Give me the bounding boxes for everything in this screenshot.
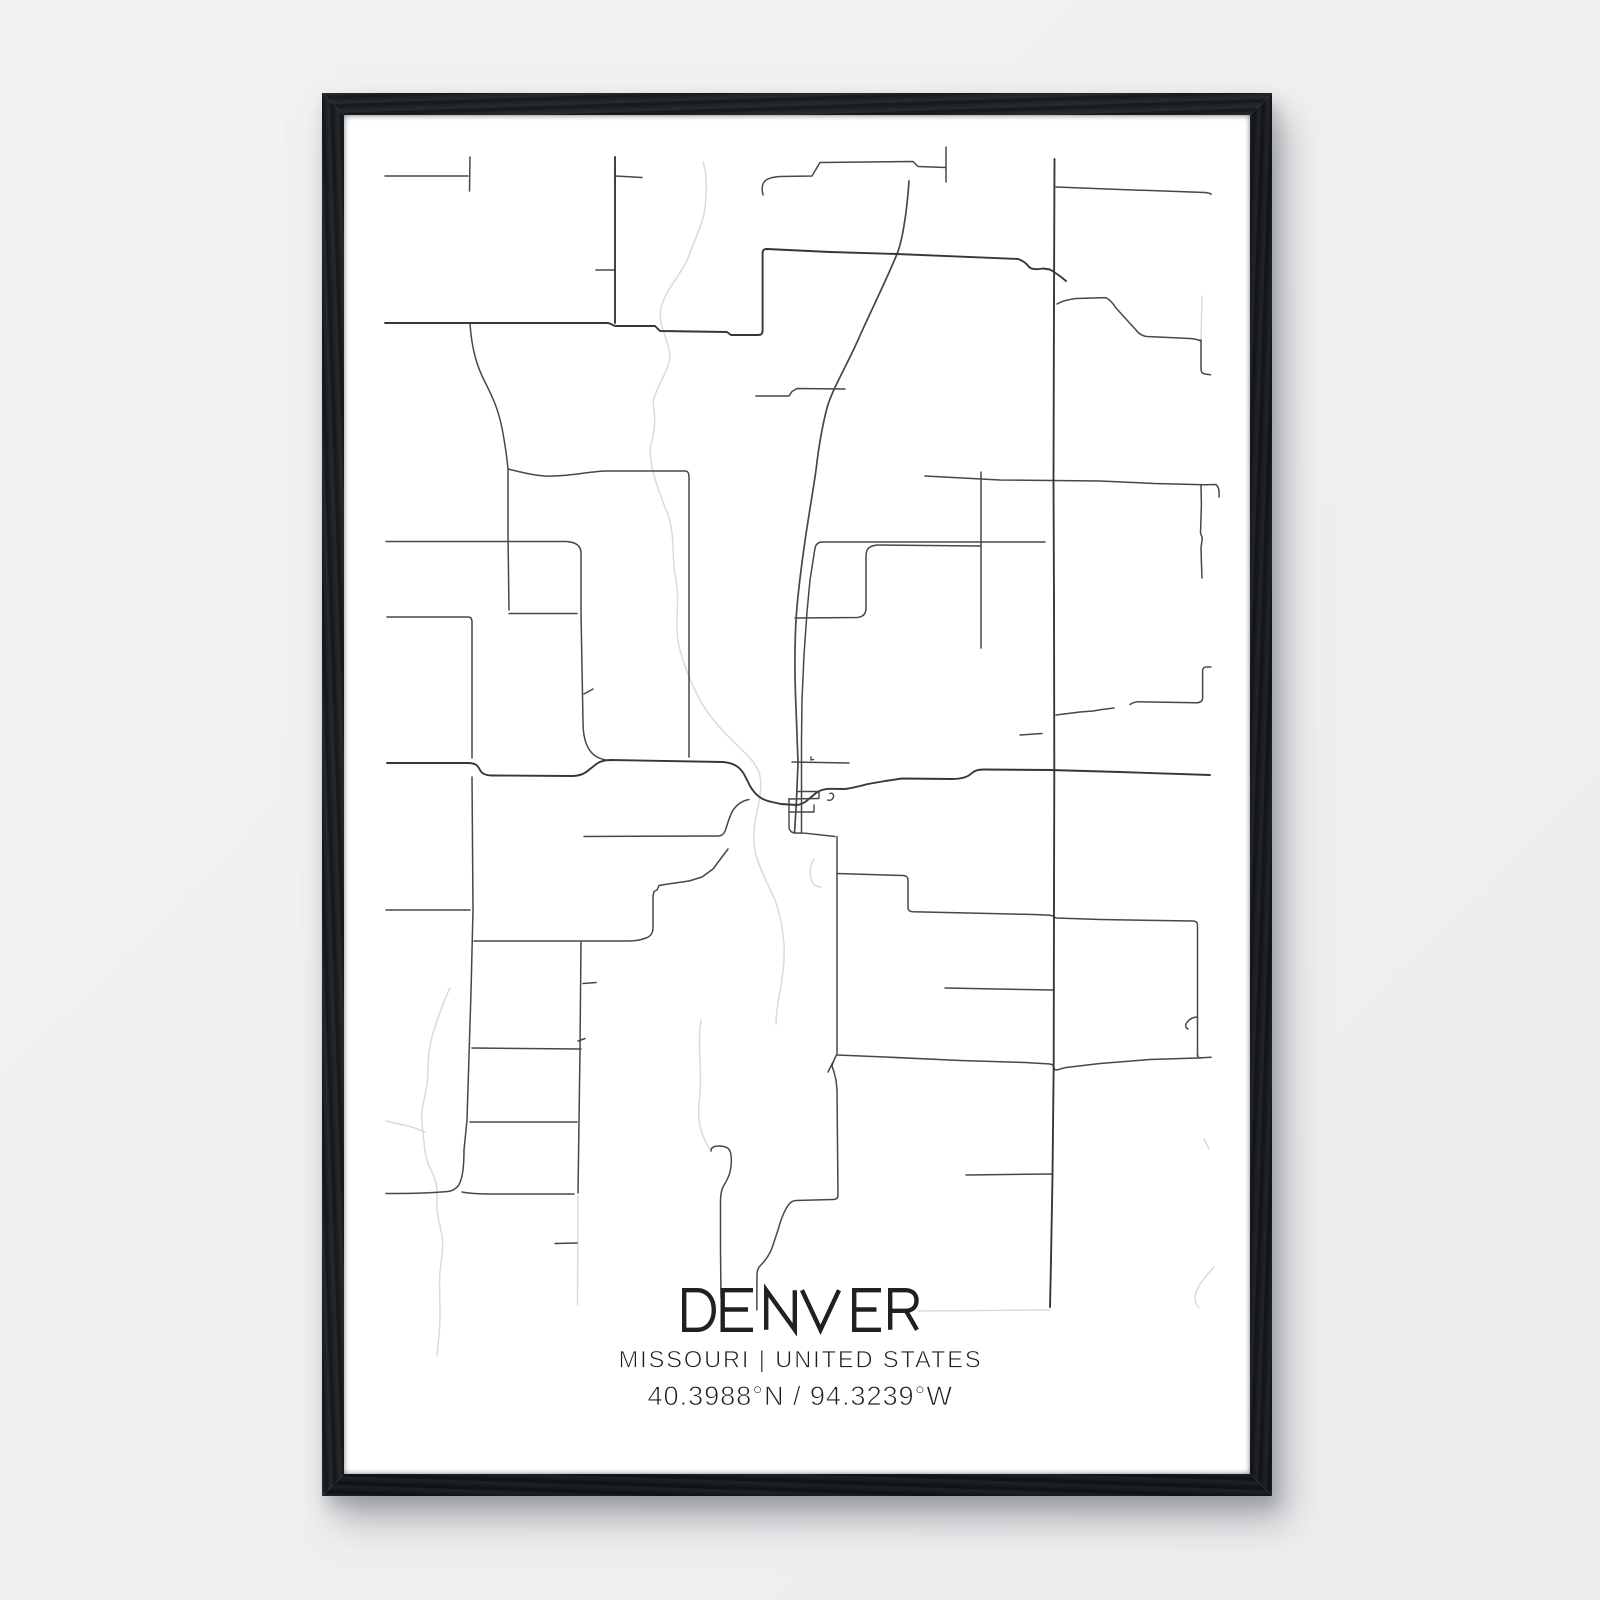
svg-text:40.3988°N / 94.3239°W: 40.3988°N / 94.3239°W [648,1380,953,1411]
svg-text:MISSOURI | UNITED STATES: MISSOURI | UNITED STATES [619,1348,981,1374]
